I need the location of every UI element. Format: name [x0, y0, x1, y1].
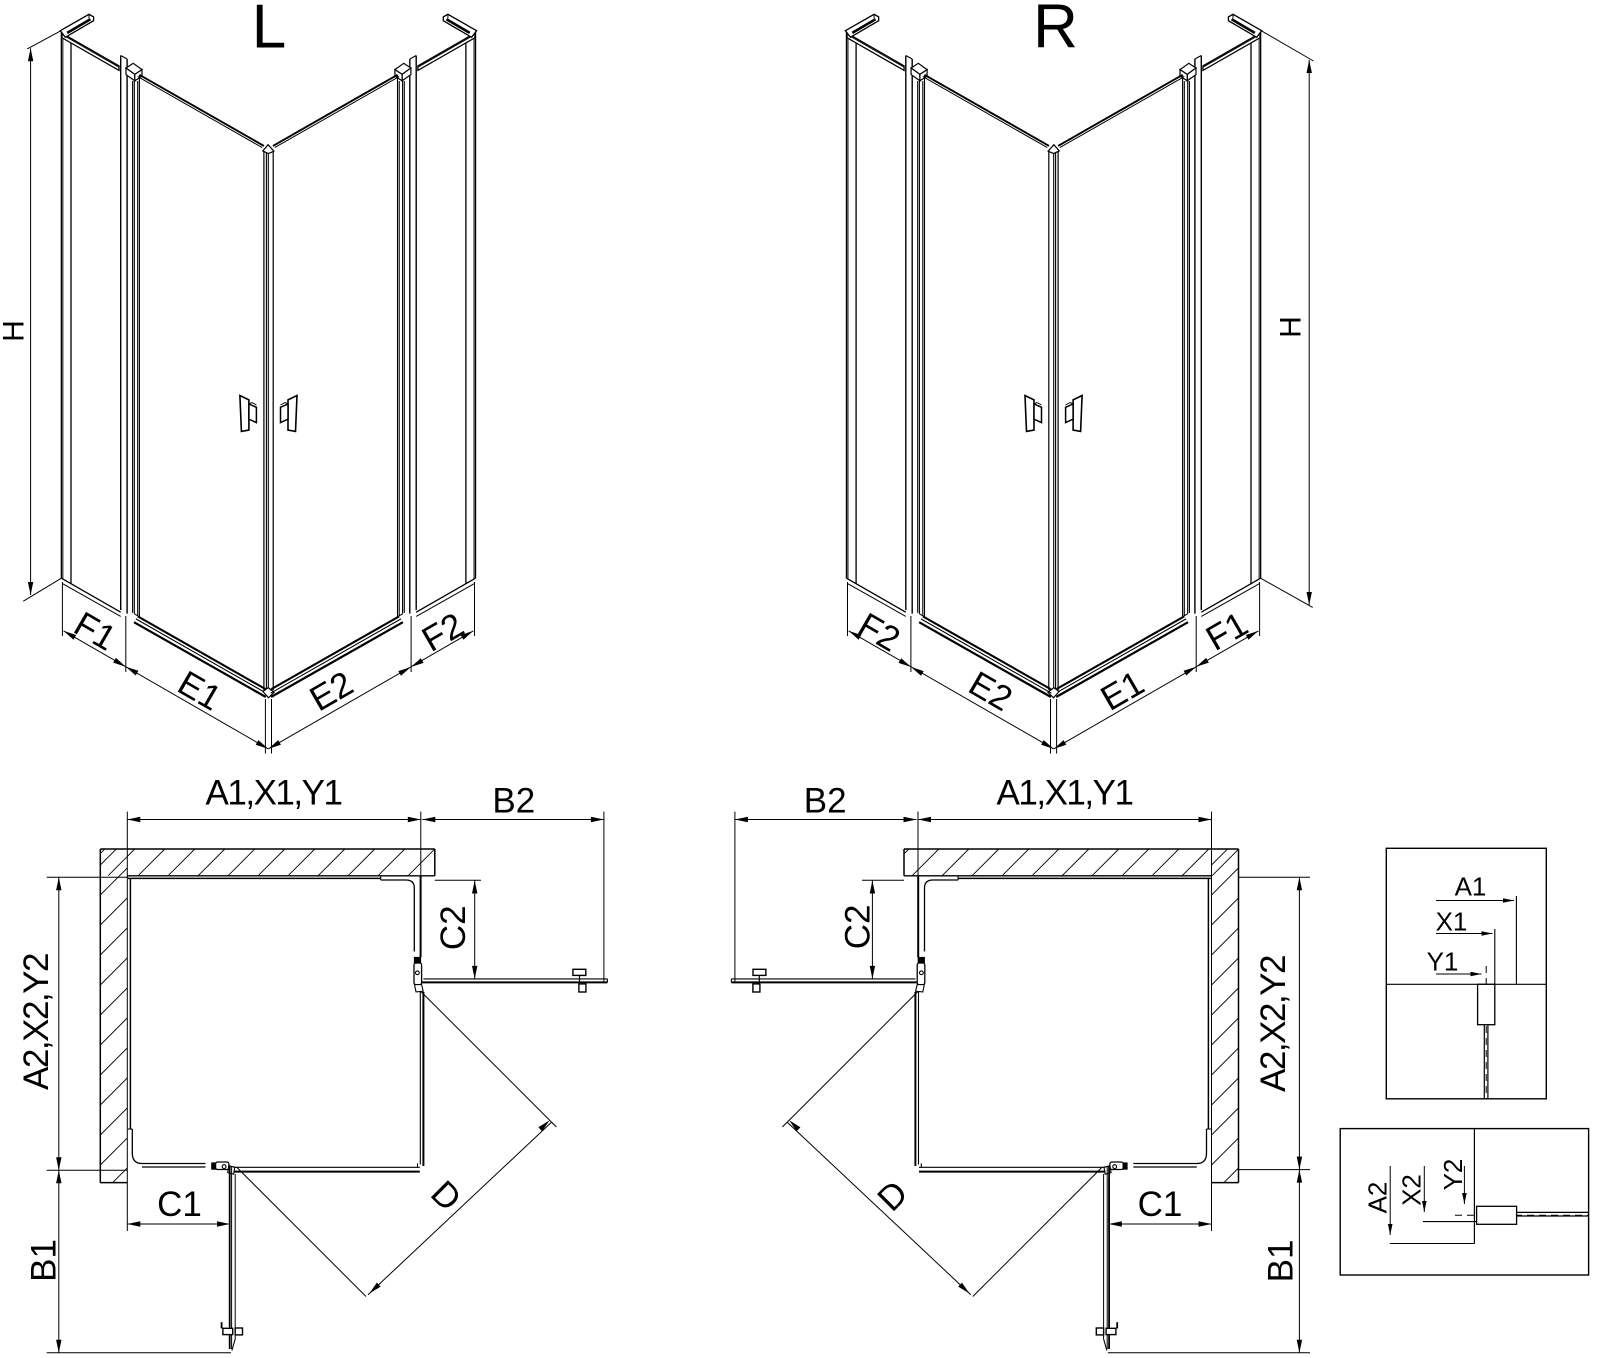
svg-text:B1: B1 [1262, 1240, 1301, 1283]
svg-text:Y2: Y2 [1438, 1159, 1468, 1191]
svg-text:C2: C2 [839, 905, 878, 950]
svg-text:Y1: Y1 [1427, 947, 1459, 977]
svg-text:A2: A2 [1363, 1182, 1393, 1214]
svg-text:B1: B1 [25, 1239, 64, 1282]
svg-text:H: H [0, 320, 31, 342]
svg-text:A2,X2,Y2: A2,X2,Y2 [1254, 956, 1293, 1092]
svg-text:A2,X2,Y2: A2,X2,Y2 [17, 954, 56, 1090]
svg-text:C1: C1 [1138, 1185, 1183, 1224]
svg-text:H: H [1275, 316, 1308, 338]
svg-text:B2: B2 [492, 782, 535, 821]
svg-text:A1: A1 [1455, 872, 1487, 902]
svg-text:R: R [1033, 0, 1078, 62]
svg-text:L: L [252, 0, 286, 62]
svg-text:A1,X1,Y1: A1,X1,Y1 [206, 774, 342, 813]
svg-text:C1: C1 [157, 1185, 202, 1224]
svg-text:B2: B2 [804, 782, 847, 821]
svg-text:X1: X1 [1436, 907, 1468, 937]
svg-text:C2: C2 [434, 905, 473, 950]
svg-text:X2: X2 [1397, 1174, 1427, 1206]
svg-text:A1,X1,Y1: A1,X1,Y1 [997, 774, 1133, 813]
